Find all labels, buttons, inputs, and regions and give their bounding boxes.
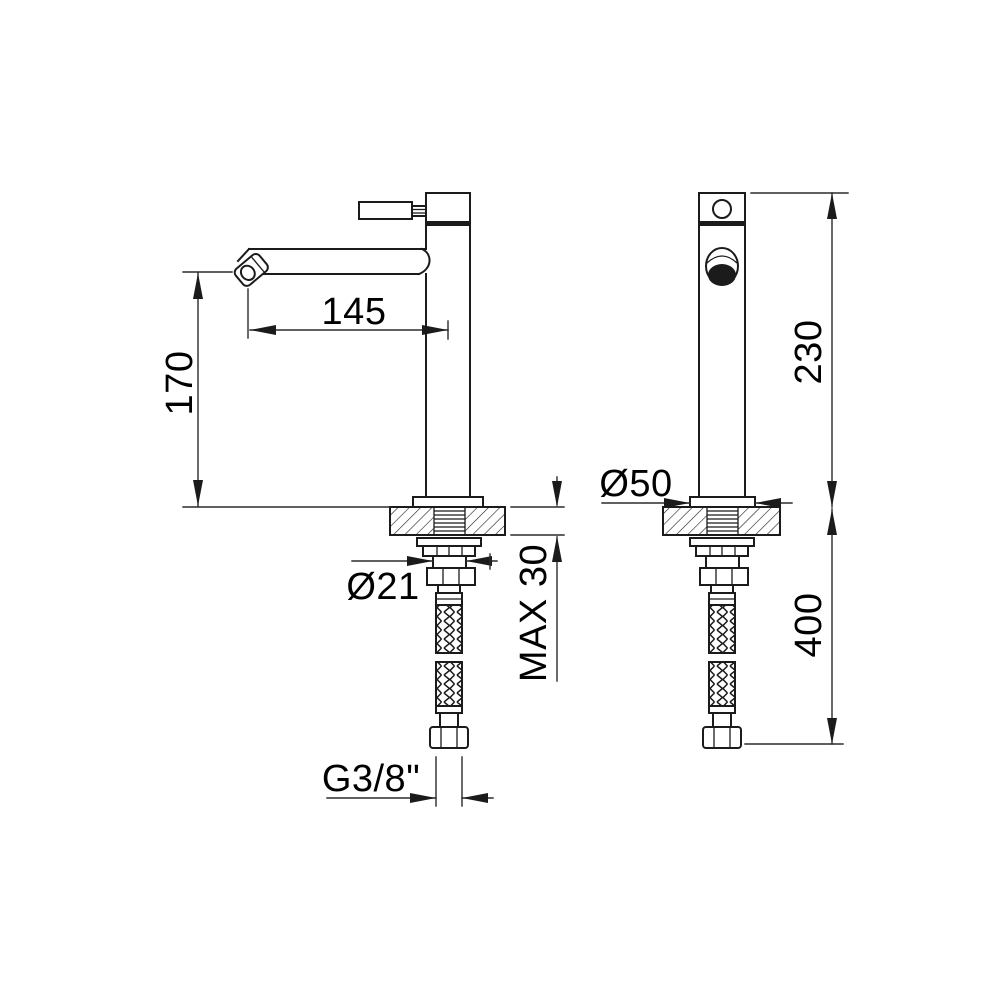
dimension-thread: G3/8" bbox=[322, 757, 493, 806]
dimension-hose-length: 400 bbox=[745, 509, 843, 744]
dimension-spout-reach-label: 145 bbox=[322, 291, 387, 333]
hose-nipple bbox=[438, 585, 460, 593]
mounting-deck-side bbox=[390, 497, 505, 535]
dimension-body-height: 230 bbox=[751, 193, 848, 507]
aerator bbox=[233, 252, 270, 288]
arrowhead bbox=[827, 481, 837, 507]
spout-outlet-front bbox=[706, 248, 738, 286]
hose-end-tube bbox=[713, 713, 731, 727]
dimension-base-diameter-label: Ø50 bbox=[599, 463, 672, 505]
spout-body-fillet bbox=[419, 249, 430, 274]
arrowhead bbox=[193, 480, 203, 506]
hose-end-tube bbox=[440, 713, 458, 727]
arrowhead bbox=[422, 325, 448, 335]
cap-seam-band bbox=[425, 221, 471, 226]
supply-hose-side bbox=[417, 538, 481, 748]
deck-hatch bbox=[390, 507, 434, 535]
deck-hatch bbox=[663, 507, 707, 535]
arrowhead bbox=[407, 556, 433, 566]
threaded-shank-side bbox=[434, 507, 465, 535]
base-plate-front bbox=[690, 497, 755, 507]
braided-hose-upper bbox=[709, 605, 735, 653]
arrowhead bbox=[466, 556, 492, 566]
side-view bbox=[233, 193, 505, 748]
arrowhead bbox=[552, 481, 562, 507]
dimension-body-height-label: 230 bbox=[788, 320, 830, 385]
arrowhead bbox=[193, 273, 203, 299]
faucet-body-front bbox=[699, 193, 745, 497]
threaded-shank-front bbox=[707, 507, 738, 535]
hose-ferrule-end bbox=[436, 706, 462, 713]
dimension-thread-label: G3/8" bbox=[322, 758, 420, 800]
dimension-spout-height-label: 170 bbox=[159, 351, 201, 416]
arrowhead bbox=[827, 509, 837, 535]
shank-tube bbox=[706, 556, 739, 568]
hose-ferrule-end bbox=[709, 706, 735, 713]
hose-end-nut bbox=[703, 727, 741, 748]
cap-seam-band-front bbox=[698, 221, 746, 226]
washer-flange bbox=[690, 538, 754, 546]
deck-hatch bbox=[465, 507, 505, 535]
faucet-technical-drawing: 145 170 Ø21 MAX 30 G3/8" bbox=[0, 0, 1000, 1000]
arrowhead bbox=[250, 325, 276, 335]
arrowhead bbox=[462, 793, 488, 803]
hex-adapter bbox=[427, 568, 475, 585]
braided-hose-lower bbox=[709, 662, 735, 706]
hose-nipple bbox=[711, 585, 733, 593]
washer-flange bbox=[417, 538, 481, 546]
braided-hose-lower bbox=[436, 662, 462, 706]
dimension-shank-diameter-label: Ø21 bbox=[346, 566, 419, 608]
shank-tube bbox=[433, 556, 466, 568]
handle-joint bbox=[412, 206, 426, 216]
supply-hose-front bbox=[690, 538, 754, 748]
base-plate-side bbox=[413, 497, 483, 507]
front-view bbox=[663, 193, 780, 748]
dimension-spout-reach: 145 bbox=[248, 289, 448, 339]
dimension-max-deck-thickness-label: MAX 30 bbox=[513, 544, 555, 682]
arrowhead bbox=[827, 193, 837, 219]
mounting-deck-front bbox=[663, 507, 780, 535]
arrowhead bbox=[827, 718, 837, 744]
braided-hose-upper bbox=[436, 605, 462, 653]
deck-hatch bbox=[738, 507, 780, 535]
faucet-body-side bbox=[233, 193, 471, 497]
dimension-hose-length-label: 400 bbox=[788, 593, 830, 658]
hose-end-nut bbox=[430, 727, 468, 748]
handle-lever bbox=[359, 202, 412, 219]
dimension-max-deck-thickness: MAX 30 bbox=[511, 477, 564, 682]
drawing-canvas: 145 170 Ø21 MAX 30 G3/8" bbox=[0, 0, 1000, 1000]
hex-adapter bbox=[700, 568, 748, 585]
